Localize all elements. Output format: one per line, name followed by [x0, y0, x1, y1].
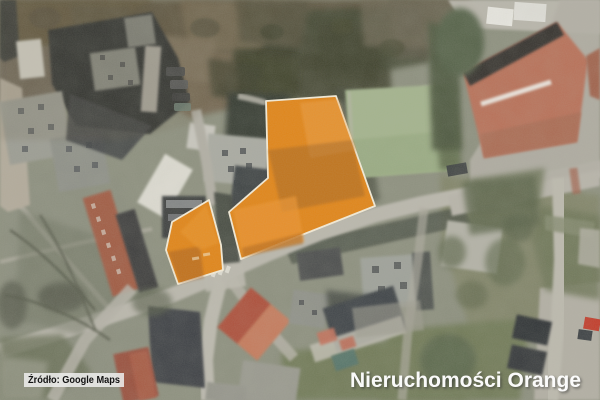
svg-text:Źródło: Google Maps: Źródło: Google Maps — [28, 373, 120, 386]
svg-text:Nieruchomości Orange: Nieruchomości Orange — [350, 369, 581, 392]
